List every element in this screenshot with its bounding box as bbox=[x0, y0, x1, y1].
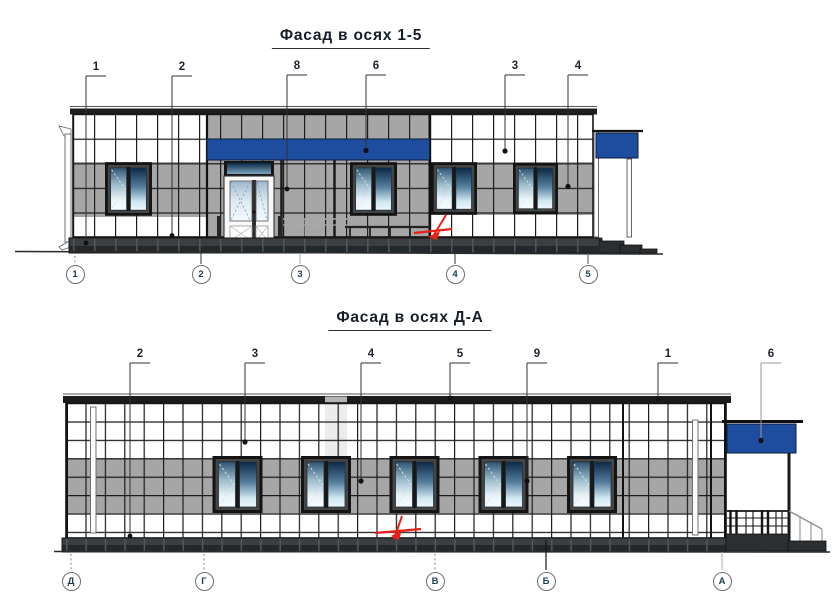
callout-label: 9 bbox=[534, 348, 540, 360]
callout-label: 8 bbox=[294, 60, 300, 72]
downspout bbox=[59, 126, 71, 250]
callout-label: 3 bbox=[512, 60, 518, 72]
window bbox=[513, 163, 558, 214]
plinth bbox=[62, 538, 726, 552]
callout-label: 5 bbox=[457, 348, 463, 360]
window bbox=[105, 162, 152, 216]
window bbox=[301, 456, 351, 513]
axis-bubble: Г bbox=[195, 572, 214, 591]
window bbox=[479, 456, 529, 513]
callout-label: 1 bbox=[93, 61, 99, 73]
axis-bubble: А bbox=[713, 572, 732, 591]
facade-bottom-title: Фасад в осях Д-А bbox=[328, 309, 491, 331]
callout-label: 3 bbox=[252, 348, 258, 360]
callout-label: 6 bbox=[373, 60, 379, 72]
axis-leaders bbox=[75, 253, 588, 264]
facade-top-drawing bbox=[15, 75, 663, 264]
ground-line bbox=[54, 552, 830, 553]
parapet-bottom bbox=[63, 394, 731, 403]
sign-band bbox=[207, 139, 430, 160]
axis-bubble: 2 bbox=[192, 265, 211, 284]
window bbox=[567, 456, 617, 513]
axis-bubble: Б bbox=[537, 572, 556, 591]
axis-bubble: 3 bbox=[291, 265, 310, 284]
callout-label: 2 bbox=[179, 61, 185, 73]
window bbox=[390, 456, 440, 513]
drawing-canvas: Фасад в осях 1-5 Фасад в осях Д-А 1 2 8 … bbox=[0, 0, 835, 614]
callout-label: 1 bbox=[665, 348, 671, 360]
window bbox=[213, 456, 263, 513]
canopy bbox=[592, 131, 643, 237]
axis-bubble: Д bbox=[62, 572, 81, 591]
axis-bubble: 4 bbox=[446, 265, 465, 284]
window bbox=[431, 162, 477, 214]
axis-bubble: 1 bbox=[66, 265, 85, 284]
axis-bubble: 5 bbox=[579, 265, 598, 284]
callout-label: 6 bbox=[768, 348, 774, 360]
callout-label: 4 bbox=[368, 348, 374, 360]
facade-top-title: Фасад в осях 1-5 bbox=[272, 27, 430, 49]
callout-label: 2 bbox=[137, 348, 143, 360]
facade-drawing bbox=[0, 0, 835, 614]
facade-bottom-drawing bbox=[54, 363, 830, 570]
callout-label: 4 bbox=[575, 60, 581, 72]
plinth bbox=[69, 238, 599, 253]
axis-bubble: В bbox=[426, 572, 445, 591]
window bbox=[350, 162, 397, 216]
